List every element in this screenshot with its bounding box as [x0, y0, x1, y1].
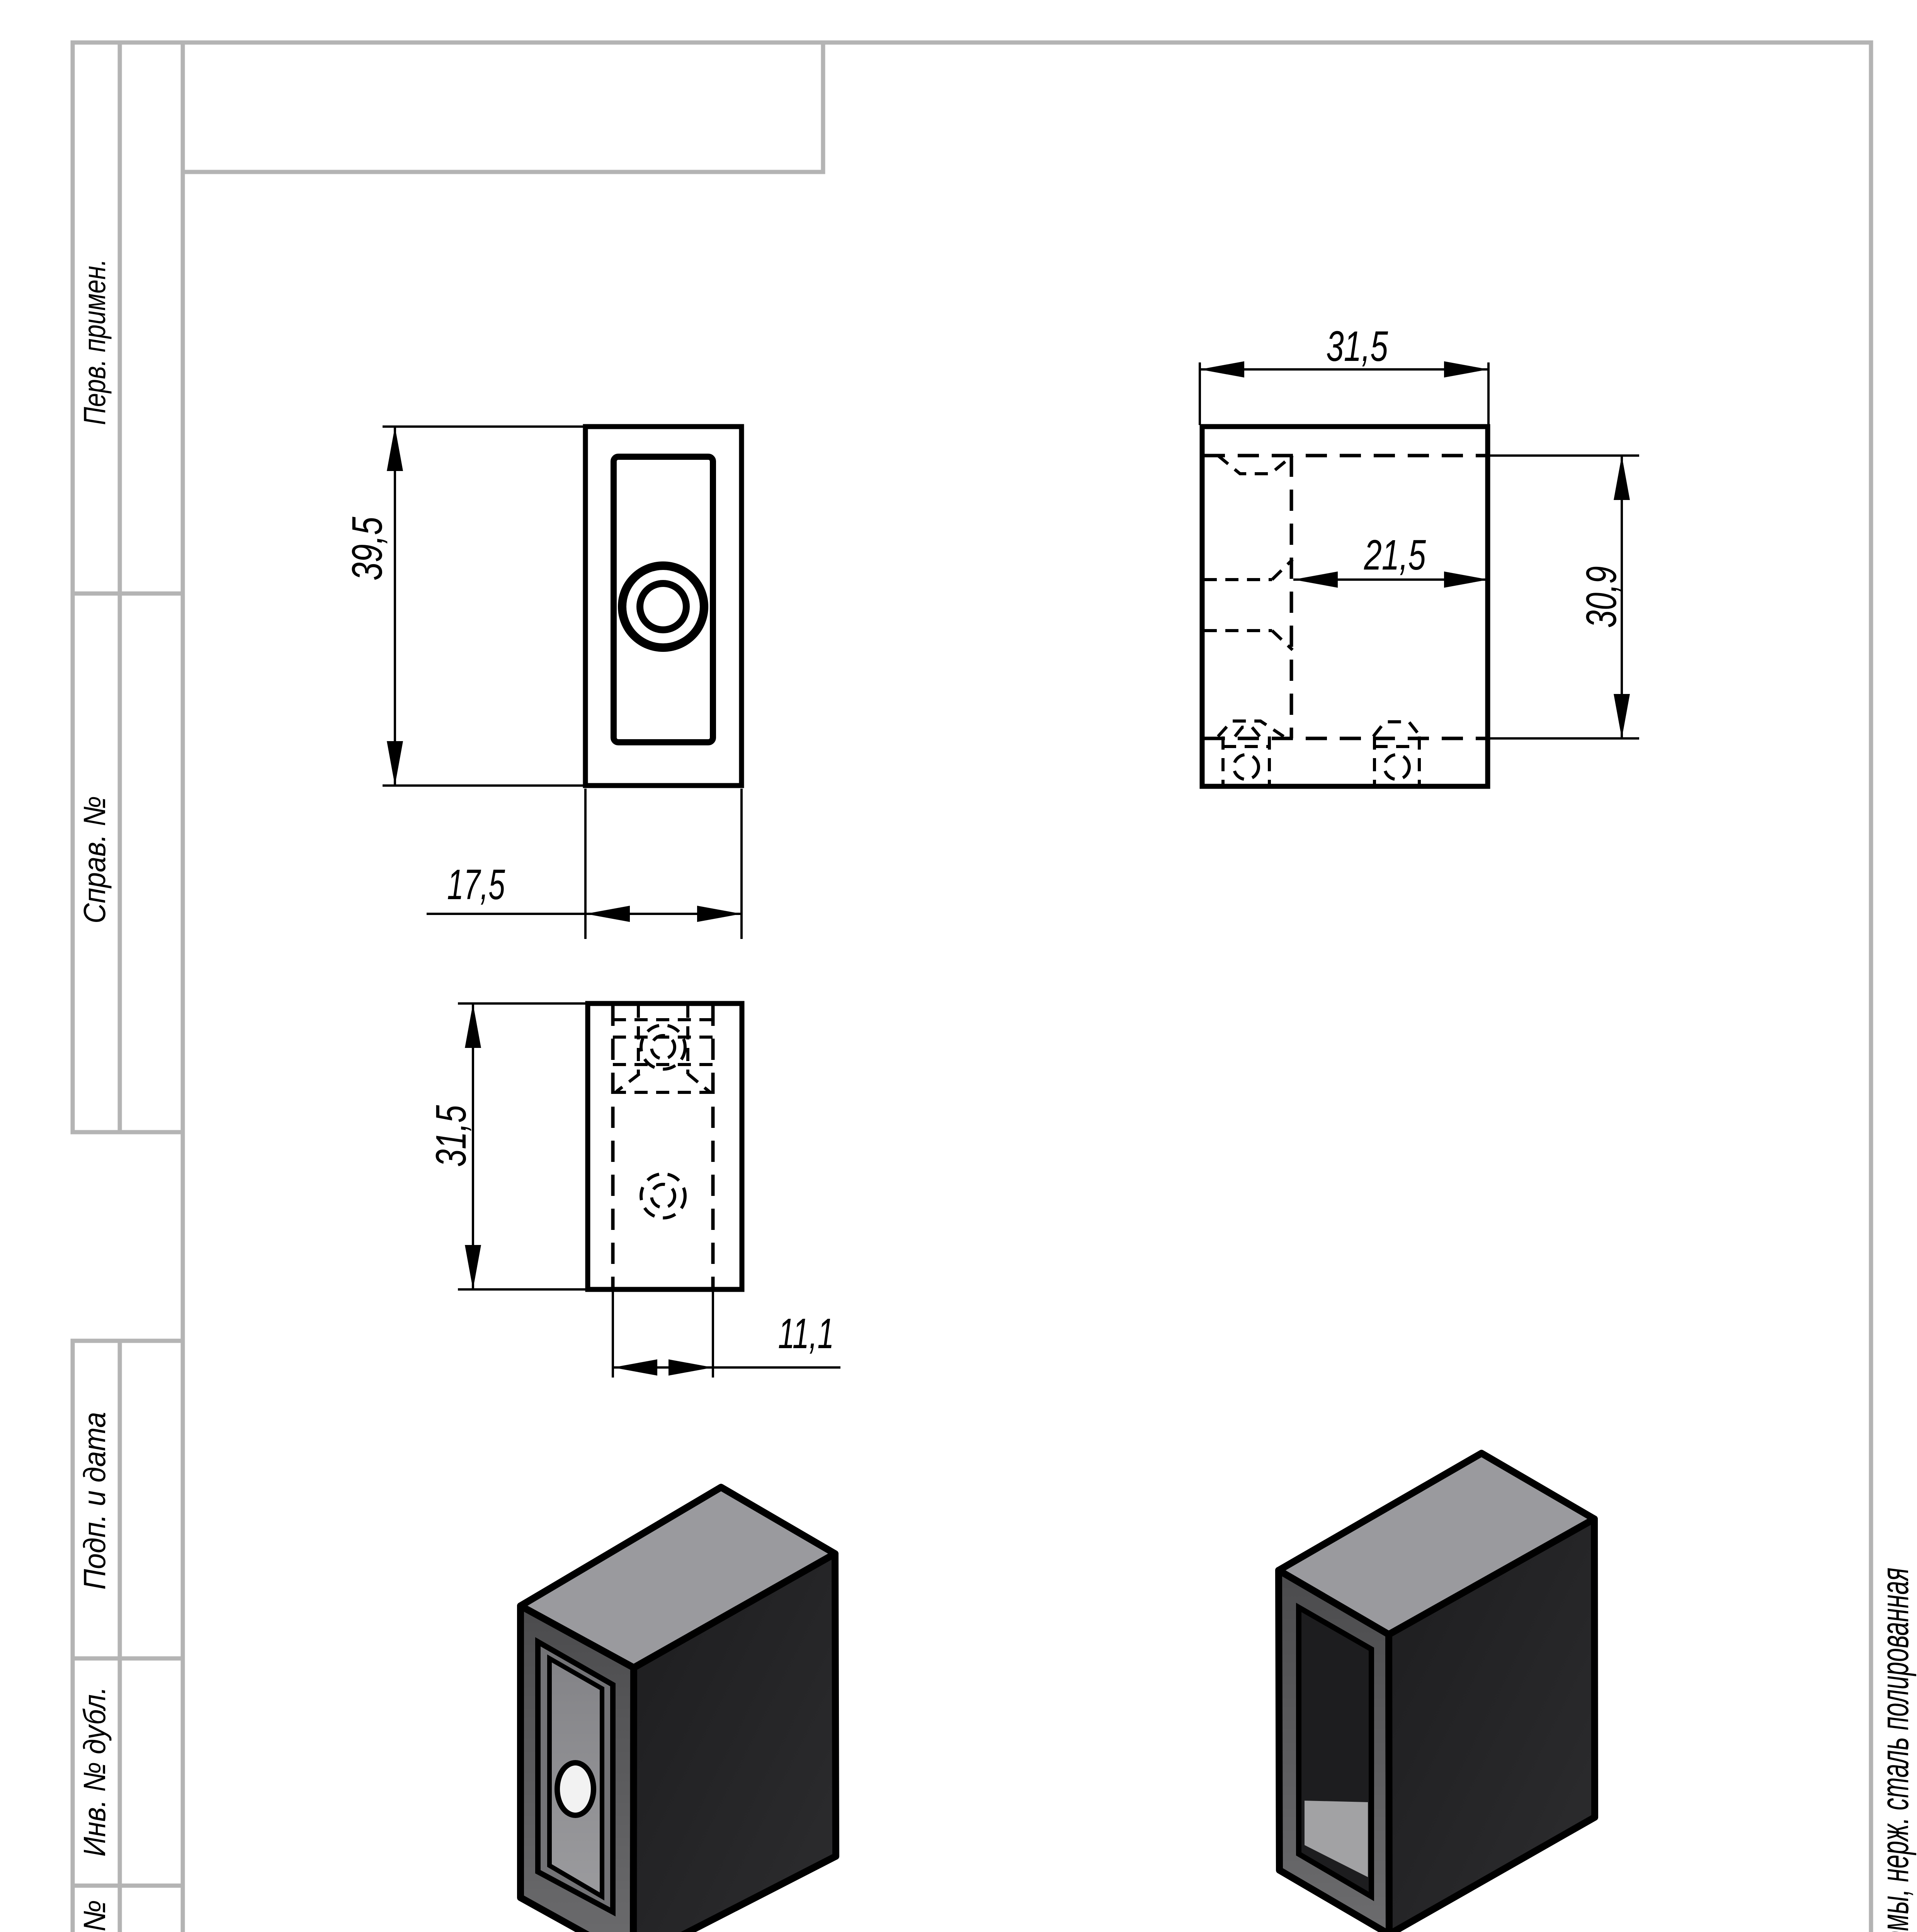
svg-text:39,5: 39,5: [344, 517, 391, 581]
svg-text:Справ. №: Справ. №: [77, 796, 112, 923]
svg-text:31,5: 31,5: [427, 1105, 475, 1167]
svg-text:Инв. № дубл.: Инв. № дубл.: [77, 1687, 112, 1857]
svg-text:Подп. и дата: Подп. и дата: [77, 1412, 112, 1590]
svg-text:17,5: 17,5: [447, 861, 505, 908]
svg-text:Перв. примен.: Перв. примен.: [77, 259, 112, 425]
svg-text:31,5: 31,5: [1326, 323, 1388, 370]
svg-text:30,9: 30,9: [1578, 566, 1625, 628]
svg-text:Взам. инв. №: Взам. инв. №: [77, 1900, 112, 1932]
svg-text:Файл: 806-407-U Комплект душев: Файл: 806-407-U Комплект душевой (INOX) …: [1873, 1568, 1917, 1932]
svg-text:21,5: 21,5: [1364, 531, 1426, 579]
svg-text:11,1: 11,1: [778, 1310, 834, 1357]
